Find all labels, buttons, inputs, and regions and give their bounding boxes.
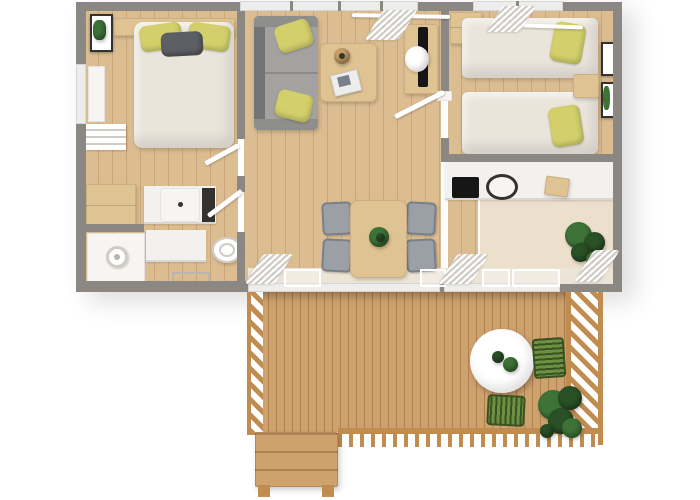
table-plant-pot [492,351,504,363]
cutting-board [544,175,570,197]
dining-chair [321,201,353,236]
sliding-door-living [248,283,440,292]
pillow-yellow-twin [547,104,585,149]
cooktop [452,177,479,198]
shower-head-dot [114,254,120,260]
terrace-chair-bottom [486,394,526,427]
deck-railing-bottom [338,434,598,447]
sofa-armrest [254,119,318,130]
table-plant-leaf [376,233,385,242]
wall-bottom-bathroom [76,281,252,292]
wall-living-twin-a [441,11,449,93]
window-mullion [380,1,383,11]
glass-panel [284,269,321,287]
towel-shelf [86,124,126,150]
table-plant-pot [503,357,518,372]
window-mullion [290,1,293,11]
window-mullion [338,1,341,11]
wall-bathroom-top [85,224,144,232]
terrace-plant [562,418,582,438]
steps-leg [258,485,270,497]
desk-chair [405,46,429,72]
deck-railing-right-cap [598,292,603,445]
sofa-back [254,16,265,130]
bathroom-cabinet [146,230,206,262]
wardrobe-main [86,184,136,228]
terrace-plant-leaf [540,424,554,438]
wall-bedroom-living-c [237,232,245,284]
kitchen-sink [486,174,518,200]
art-plant-leaves [603,86,610,110]
window-ledge [88,66,105,122]
deck-steps [255,432,338,487]
steps-leg [322,485,334,497]
wall-left [76,2,86,292]
window-left-bedroom [76,64,86,124]
wall-right [613,2,622,292]
terrace-chair-right [532,337,567,379]
nightstand [573,74,599,98]
sofa-cushion-line [265,72,318,74]
pillow-gray [160,31,203,57]
sink-faucet-dot [178,202,183,207]
art-plant-leaves [93,20,106,40]
floorplan-render [0,0,700,500]
wardrobe-door-line [86,205,136,206]
bowl-center [339,53,345,59]
glass-panel [512,269,560,287]
wall-bedroom-living-a [237,11,245,139]
glass-panel [482,269,510,287]
wall-twin-kitchen [448,154,615,162]
deck-railing-left [251,292,263,435]
dining-chair [321,238,353,273]
terrace-plant [558,386,582,410]
toilet-seat [219,243,235,257]
dining-chair [405,238,437,273]
dining-chair [405,201,437,236]
